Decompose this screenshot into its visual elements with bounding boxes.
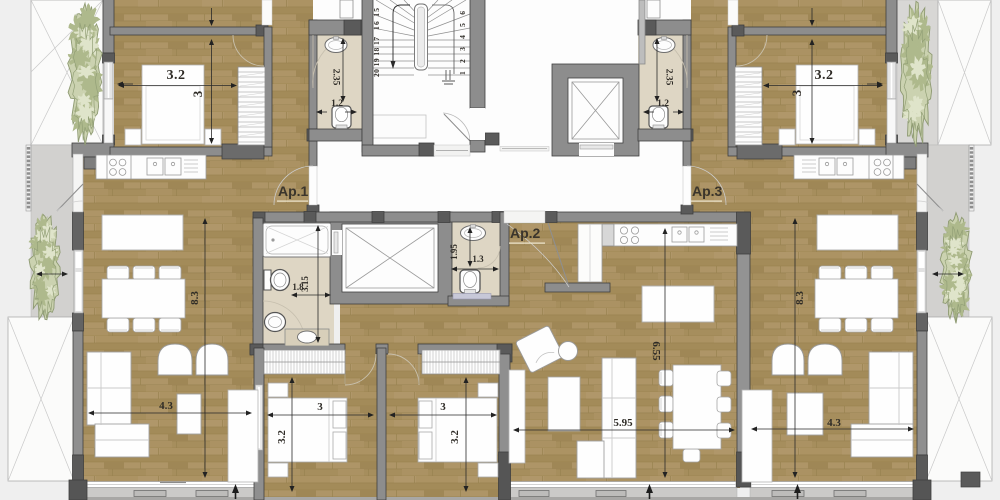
svg-text:3.15: 3.15: [300, 276, 310, 292]
svg-text:1.2: 1.2: [657, 99, 669, 109]
svg-text:2.35: 2.35: [664, 69, 674, 86]
svg-text:3: 3: [317, 401, 323, 413]
svg-text:3: 3: [190, 90, 205, 97]
svg-text:1.95: 1.95: [449, 244, 459, 260]
svg-text:3: 3: [789, 89, 804, 96]
svg-text:3.2: 3.2: [815, 68, 834, 83]
svg-text:3.2: 3.2: [449, 430, 461, 444]
svg-text:3.2: 3.2: [276, 430, 288, 444]
svg-text:Ap.3: Ap.3: [692, 183, 723, 199]
svg-text:3.2: 3.2: [167, 68, 186, 83]
svg-text:1.3: 1.3: [472, 254, 484, 264]
svg-text:4.3: 4.3: [827, 417, 841, 429]
svg-text:8.3: 8.3: [189, 291, 201, 305]
svg-text:6.55: 6.55: [650, 341, 662, 361]
svg-text:2.35: 2.35: [331, 69, 341, 86]
svg-text:1.2: 1.2: [331, 99, 343, 109]
svg-text:5.95: 5.95: [613, 417, 633, 429]
svg-text:8.3: 8.3: [794, 291, 806, 305]
svg-text:Ap.2: Ap.2: [510, 225, 541, 241]
svg-text:3: 3: [440, 401, 446, 413]
svg-text:4.3: 4.3: [159, 400, 173, 412]
svg-text:Ap.1: Ap.1: [278, 183, 309, 199]
